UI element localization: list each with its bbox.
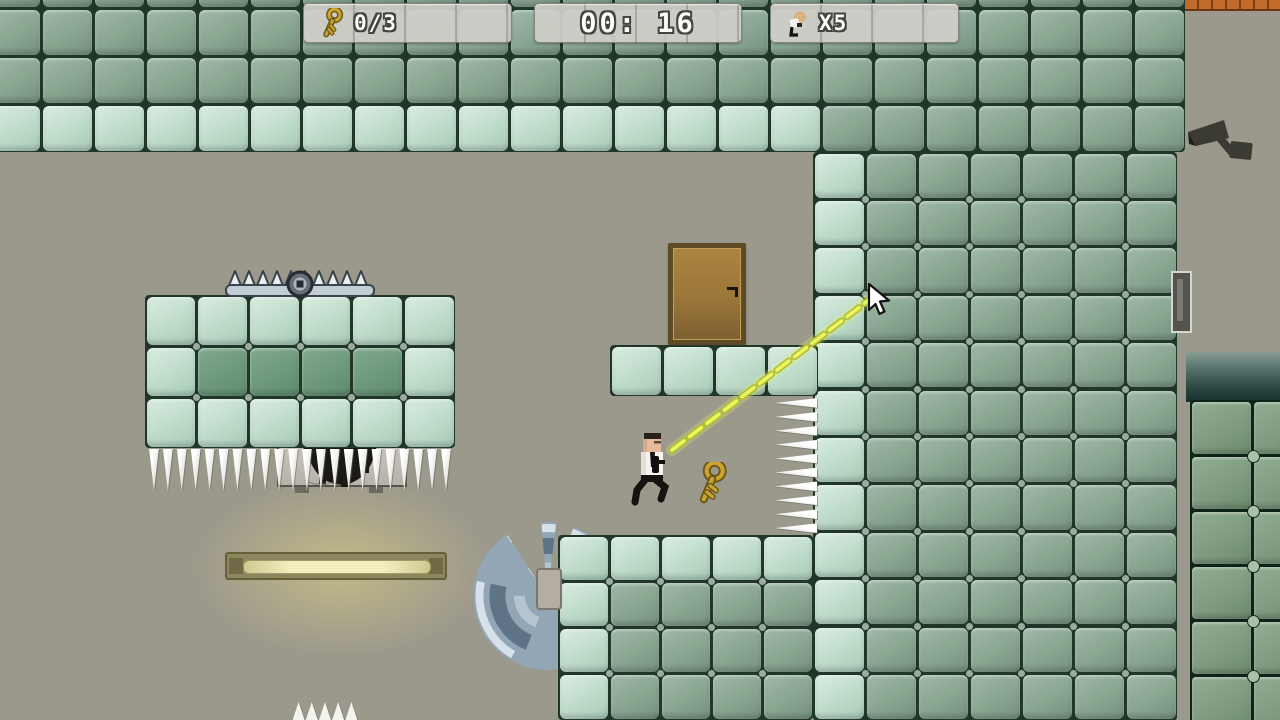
right-wall	[813, 152, 1177, 720]
dark-wall-bottom-right	[1190, 400, 1280, 720]
floor-spikes	[292, 702, 358, 720]
lamp-cap	[229, 558, 243, 574]
key-pickup	[690, 462, 732, 504]
fluorescent-lamp	[225, 552, 447, 580]
hanging-spikes	[147, 449, 453, 491]
game-scene	[0, 0, 1280, 720]
left-platform	[145, 295, 455, 448]
security-camera	[1186, 114, 1254, 166]
saw-mount	[536, 568, 562, 610]
exit-door	[668, 243, 746, 345]
mouse-cursor	[866, 283, 892, 317]
door-ledge	[610, 345, 818, 396]
bear-trap	[224, 266, 376, 298]
player-character	[628, 432, 672, 506]
game-viewport[interactable]: 0/3 00: 16 X5	[0, 0, 1280, 720]
door-handle-stem	[735, 287, 738, 297]
lamp-cap	[429, 558, 443, 574]
wall-spikes	[775, 396, 817, 535]
bottom-platform	[558, 535, 813, 720]
brick-strip	[1171, 0, 1280, 11]
vent-slot	[1177, 279, 1183, 321]
door-panel	[673, 248, 741, 340]
wall-vent	[1171, 271, 1192, 333]
lamp-tube	[243, 560, 431, 574]
top-wall	[0, 0, 1185, 152]
pipe-gradient	[1186, 352, 1280, 402]
